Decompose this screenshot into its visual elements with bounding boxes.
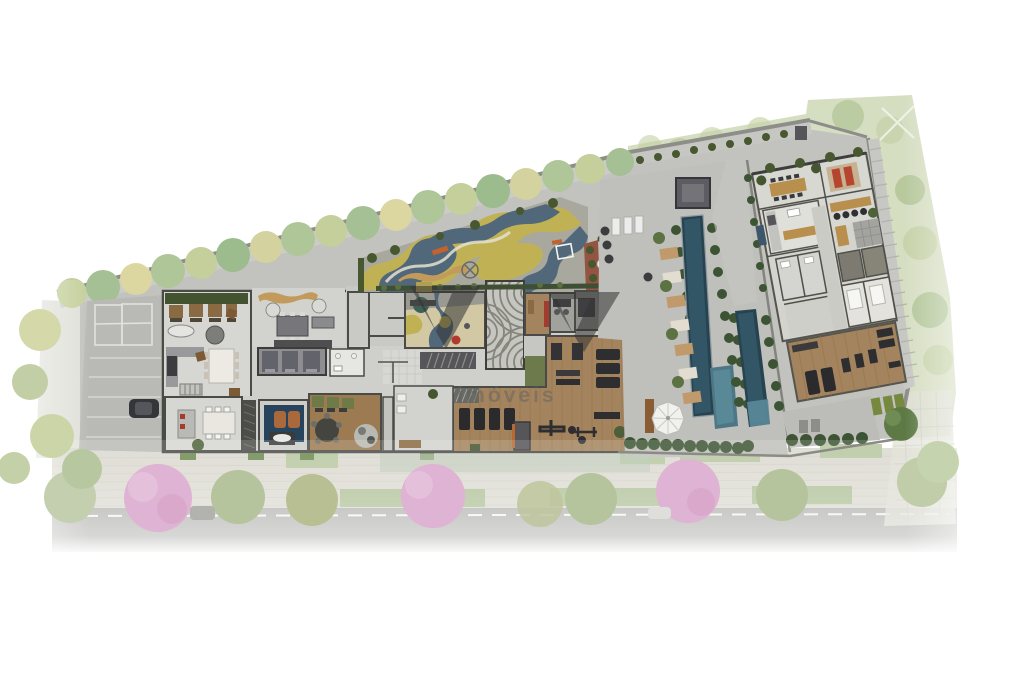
svg-text:imóveis: imóveis <box>457 384 556 407</box>
